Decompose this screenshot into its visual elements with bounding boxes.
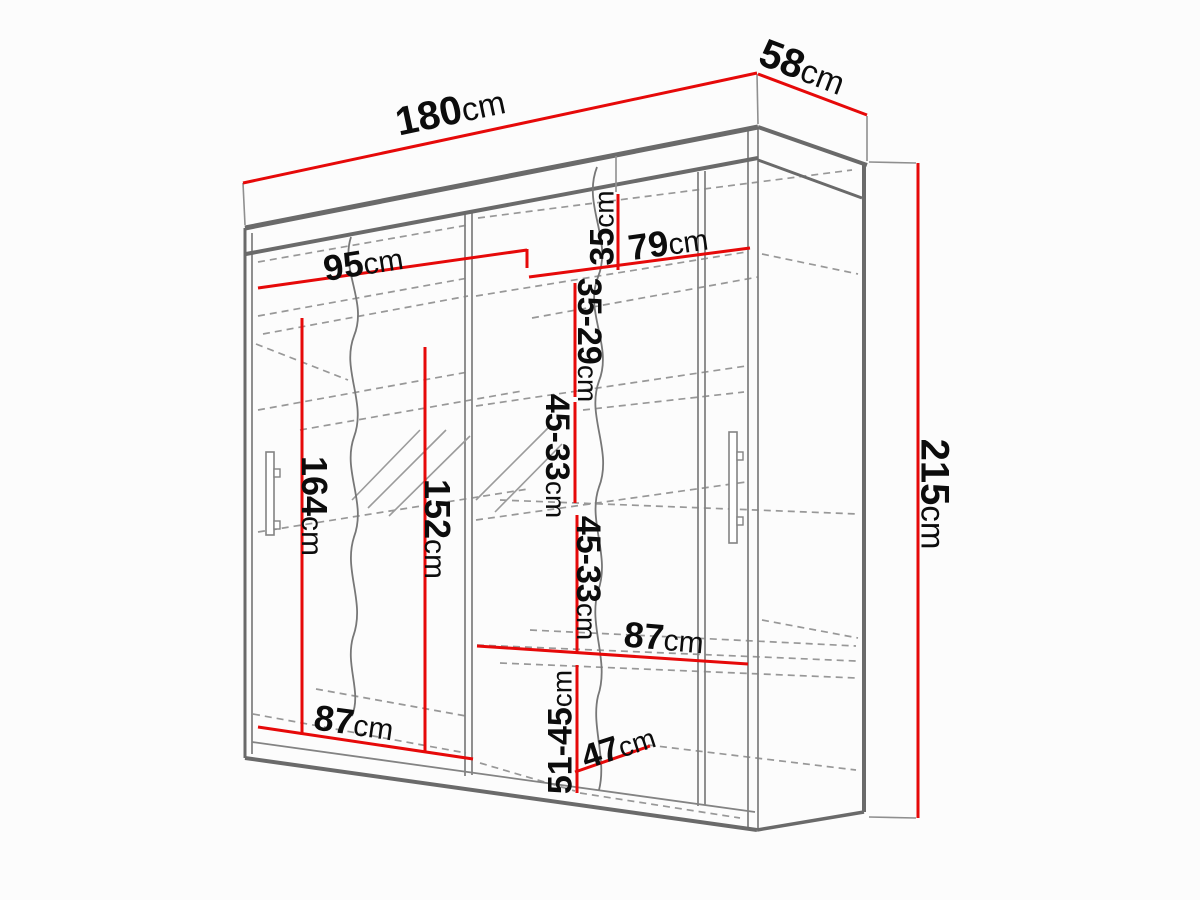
dim-label-51-45: 51-45cm [541, 670, 579, 794]
dim-label-164: 164cm [294, 456, 335, 556]
dim-label-215: 215cm [913, 439, 957, 550]
dimension-extension-line [869, 817, 916, 818]
door-handle [266, 452, 274, 535]
dim-label-group-51-45: 51-45cm [541, 670, 579, 794]
dim-label-35-29: 35-29cm [570, 278, 608, 402]
door-handle-tab [737, 517, 743, 525]
dim-label-group-35: 35cm [583, 190, 621, 265]
dim-label-group-164: 164cm [294, 456, 335, 556]
dim-label-group-152: 152cm [417, 479, 458, 579]
dim-label-152: 152cm [417, 479, 458, 579]
dim-label-45-33b: 45-33cm [569, 516, 607, 640]
dim-label-group-215: 215cm [913, 439, 957, 550]
dim-label-group-35-29: 35-29cm [570, 278, 608, 402]
dimension-extension-line [869, 162, 916, 163]
dim-label-45-33a: 45-33cm [538, 394, 576, 518]
diagram-svg: 180cm58cm215cm95cm79cm35cm35-29cm45-33cm… [0, 0, 1200, 900]
door-handle-tab [737, 452, 743, 460]
dim-label-35: 35cm [583, 190, 621, 265]
dimension-extension-line [757, 74, 758, 124]
dim-label-group-45-33a: 45-33cm [538, 394, 576, 518]
door-handle [729, 432, 737, 543]
wardrobe-dimension-diagram: 180cm58cm215cm95cm79cm35cm35-29cm45-33cm… [0, 0, 1200, 900]
dim-label-group-45-33b: 45-33cm [569, 516, 607, 640]
door-handle-tab [274, 469, 280, 477]
door-handle-tab [274, 521, 280, 529]
